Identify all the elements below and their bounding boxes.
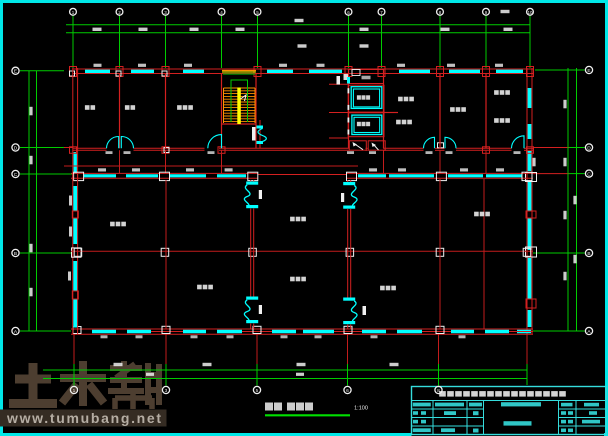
svg-text:B: B bbox=[14, 251, 17, 257]
svg-text:C: C bbox=[587, 171, 591, 177]
svg-text:D: D bbox=[587, 145, 591, 151]
svg-text:B: B bbox=[587, 251, 590, 257]
svg-text:1: 1 bbox=[73, 388, 76, 394]
svg-text:www.tumubang.net: www.tumubang.net bbox=[6, 410, 163, 426]
svg-text:6: 6 bbox=[346, 388, 349, 394]
svg-text:8: 8 bbox=[437, 388, 440, 394]
svg-text:E: E bbox=[14, 69, 17, 75]
svg-text:3: 3 bbox=[165, 388, 168, 394]
svg-text:10: 10 bbox=[527, 10, 533, 15]
svg-text:5: 5 bbox=[256, 388, 259, 394]
svg-text:E: E bbox=[587, 68, 590, 74]
svg-text:1:100: 1:100 bbox=[354, 406, 368, 412]
svg-text:C: C bbox=[14, 172, 18, 178]
svg-text:D: D bbox=[14, 145, 18, 151]
